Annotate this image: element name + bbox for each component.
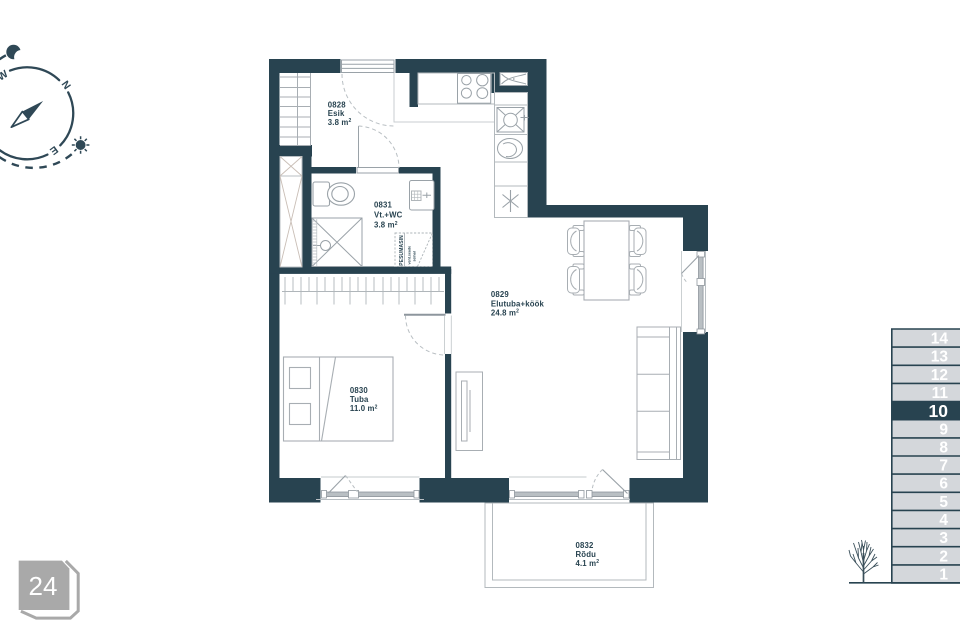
- svg-text:11: 11: [932, 385, 949, 402]
- svg-text:Esik: Esik: [328, 109, 345, 118]
- svg-text:9: 9: [939, 421, 948, 438]
- svg-text:8: 8: [939, 439, 948, 456]
- svg-text:0831: 0831: [374, 200, 392, 209]
- svg-text:6: 6: [939, 476, 948, 493]
- svg-text:24.8 m2: 24.8 m2: [491, 308, 519, 317]
- svg-text:vent.seade: vent.seade: [408, 246, 412, 265]
- svg-text:W: W: [0, 68, 10, 84]
- svg-text:0832: 0832: [576, 541, 594, 550]
- svg-text:3.8 m2: 3.8 m2: [328, 118, 352, 127]
- svg-text:14: 14: [931, 331, 949, 348]
- svg-text:11.0 m2: 11.0 m2: [350, 404, 378, 413]
- svg-text:PESUMASIN: PESUMASIN: [399, 235, 405, 266]
- svg-text:5: 5: [939, 494, 948, 511]
- svg-text:10: 10: [929, 401, 949, 421]
- svg-text:3.8 m2: 3.8 m2: [374, 221, 398, 230]
- svg-text:3: 3: [939, 530, 948, 547]
- svg-text:2: 2: [939, 548, 948, 565]
- svg-text:N: N: [59, 79, 73, 92]
- svg-text:0829: 0829: [491, 290, 509, 299]
- svg-text:24: 24: [29, 571, 58, 601]
- svg-text:seinal: seinal: [413, 251, 417, 261]
- svg-text:12: 12: [931, 367, 948, 384]
- svg-text:1: 1: [939, 566, 948, 583]
- svg-text:7: 7: [939, 458, 948, 475]
- svg-text:0830: 0830: [350, 386, 368, 395]
- svg-text:Elutuba+köök: Elutuba+köök: [491, 300, 545, 309]
- svg-text:Tuba: Tuba: [350, 395, 369, 404]
- svg-text:13: 13: [931, 349, 949, 366]
- svg-text:E: E: [47, 143, 60, 157]
- svg-text:4.1 m2: 4.1 m2: [576, 559, 600, 568]
- svg-text:Rõdu: Rõdu: [576, 550, 597, 559]
- svg-text:Vt.+WC: Vt.+WC: [374, 210, 403, 219]
- svg-text:4: 4: [939, 512, 948, 529]
